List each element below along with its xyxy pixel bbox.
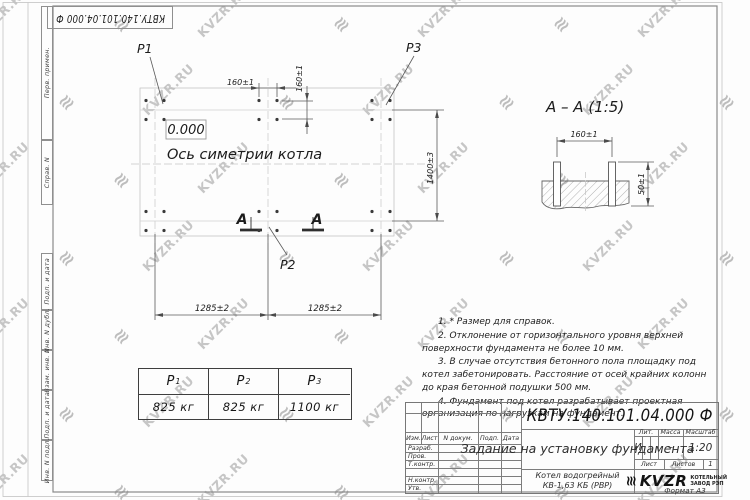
symmetry-axis-label: Ось симетрии котла [167,147,322,163]
anchor-bolt-dot [275,118,278,121]
margin-label: Перв. примен. [44,47,51,98]
tb-scale-label: Масштаб [683,429,718,436]
section-dim-width: 160±1 [570,130,597,139]
drawing-sheet: KVZR.RU≋KVZR.RU≋KVZR.RU≋KVZR.RU≋≋KVZR.RU… [0,0,750,500]
dim-row-span: 1400±3 [426,152,435,184]
anchor-bolt-dot [388,210,391,213]
anchor-bolt-dot [257,118,260,121]
margin-box-inv-podl: Инв. N подл. [41,440,53,481]
dimension-arrowhead [646,162,650,170]
elevation-mark: 0.000 [167,123,204,138]
anchor-bolt-dot [388,229,391,232]
anchor-bolt-dot [257,99,260,102]
section-title: А – А (1:5) [545,98,624,116]
tb-product-line2: КВ-1,63 КБ (РВР) [543,481,613,491]
note-3: 3. В случае отсутствия бетонного пола пл… [422,356,718,394]
anchor-bolt-dot [275,210,278,213]
tb-sheet-label: Лист [634,459,664,469]
dimension-arrowhead [260,313,268,317]
tb-row-utv: Утв. [406,484,440,492]
dim-span-left: 1285±2 [195,304,229,314]
margin-box-vzam-inv: Взам. инв. N [41,350,53,390]
loads-table: P1 P2 P3 825 кг 825 кг 1100 кг [138,368,352,420]
tb-mass-value: – [658,436,683,459]
tb-mass-label: Масса [658,429,683,436]
margin-box-perv-primen: Перв. примен. [41,6,53,140]
anchor-bolt-dot [144,99,147,102]
top-designation-text: КВТУ.140.101.04.000 Ф [55,12,164,24]
loads-value-p3: 1100 кг [279,395,350,419]
tb-sheets-value: 1 [703,459,718,469]
anchor-bolt-dot [257,210,260,213]
margin-label: Взам. инв. N [44,348,51,393]
load-label-p2: P2 [280,257,296,272]
anchor-bolt-dot [388,99,391,102]
loads-header-p3: P3 [279,369,350,395]
top-designation-stamp: КВТУ.140.101.04.000 Ф [47,6,173,29]
anchor-bolt-dot [275,229,278,232]
load-label-p3: P3 [406,40,422,55]
anchor-bolt-dot [144,118,147,121]
anchor-bolt-dot [370,229,373,232]
loads-table-header-row: P1 P2 P3 [139,369,351,395]
margin-box-sprav-n: Справ. N [41,140,53,205]
tb-product-line1: Котел водогрейный [536,471,620,481]
dimension-arrowhead [557,139,565,143]
tb-designation: КВТУ.140.101.04.000 Ф [521,403,718,429]
tb-row-prov: Пров. [406,452,440,460]
margin-box-inv-dubl: Инв. N дубл. [41,310,53,350]
anchor-bolt-dot [144,210,147,213]
anchor-bolt-dot [370,118,373,121]
plan-construction-lines [131,78,434,250]
anchor-bolt-dot [162,229,165,232]
dimension-arrowhead [646,198,650,206]
load-label-p1: P1 [137,41,153,56]
margin-label: Подп. и дата [44,258,51,305]
anchor-bolt-dot [162,99,165,102]
anchor-bolt-dot [370,210,373,213]
tb-sheets-label: Листов [664,459,703,469]
section-letter-right: А [311,212,323,228]
dim-bolt-horizontal: 160±1 [227,78,254,87]
kvzr-coil-icon: ≋ [623,475,639,487]
loads-header-p1: P1 [139,369,209,395]
tb-liter-value: И [634,436,642,459]
dimension-arrowhead [373,313,381,317]
anchor-bolt-dot [388,118,391,121]
anchor-bolt-dot [370,99,373,102]
margin-label: Подп. и дата [44,392,51,439]
section-letter-left: А [236,212,248,228]
tb-liter-label: Лит. [634,429,658,436]
dimension-arrowhead [604,139,612,143]
margin-label: Инв. N подл. [44,438,51,483]
margin-box-podp-data-2: Подп. и дата [41,390,53,440]
dim-bolt-vertical: 160±1 [295,65,304,92]
loads-value-p2: 825 кг [209,395,279,419]
dimension-arrowhead [277,86,285,90]
tb-row-tkontr: Т.контр. [406,460,440,468]
dimension-arrowhead [305,119,309,127]
anchor-bolt-left [554,162,561,206]
title-block: Изм. Лист N докум. Подп. Дата Разраб. Пр… [405,402,719,494]
section-dim-height: 50±1 [637,173,646,195]
margin-box-podp-data-1: Подп. и дата [41,253,53,310]
dimension-arrowhead [155,313,163,317]
note-2: 2. Отклонение от горизонтального уровня … [422,330,718,356]
section-view-geometry [542,162,629,211]
anchor-bolt-dot [275,99,278,102]
tb-row-razrab: Разраб. [406,444,440,452]
tb-row-nkontr: Н.контр. [406,476,440,484]
format-note: Формат А3 [645,486,725,495]
anchor-bolt-dot [162,118,165,121]
tb-header-list: Лист [421,432,438,444]
tb-product: Котел водогрейный КВ-1,63 КБ (РВР) [521,469,634,493]
tb-header-izm: Изм. [406,432,421,444]
anchor-bolt-dot [144,229,147,232]
loads-header-p2: P2 [209,369,279,395]
dimension-arrowhead [305,93,309,101]
dimension-arrowhead [435,110,439,118]
dimension-arrowhead [268,313,276,317]
margin-label: Инв. N дубл. [44,308,51,353]
loads-table-value-row: 825 кг 825 кг 1100 кг [139,395,351,419]
anchor-bolt-right [609,162,616,206]
note-1: 1. * Размер для справок. [422,316,718,329]
tb-scale-value: 1:20 [683,436,718,459]
loads-value-p1: 825 кг [139,395,209,419]
tb-document-title: Задание на установку фундамента [521,429,634,469]
anchor-bolt-dot [257,229,260,232]
margin-label: Справ. N [44,157,51,188]
dim-span-right: 1285±2 [308,304,342,314]
anchor-bolt-dot [162,210,165,213]
dimension-arrowhead [435,213,439,221]
